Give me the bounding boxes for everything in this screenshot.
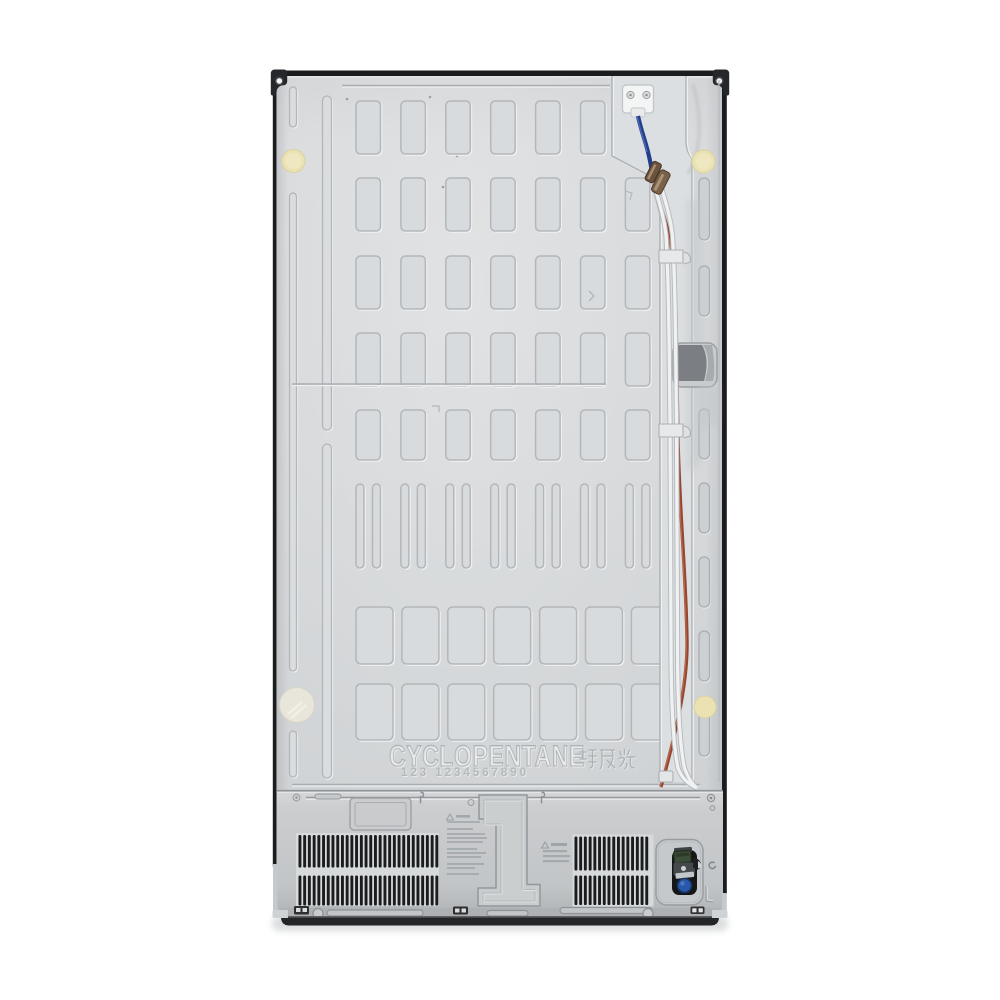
svg-text:123 1234567890: 123 1234567890 — [401, 765, 529, 779]
